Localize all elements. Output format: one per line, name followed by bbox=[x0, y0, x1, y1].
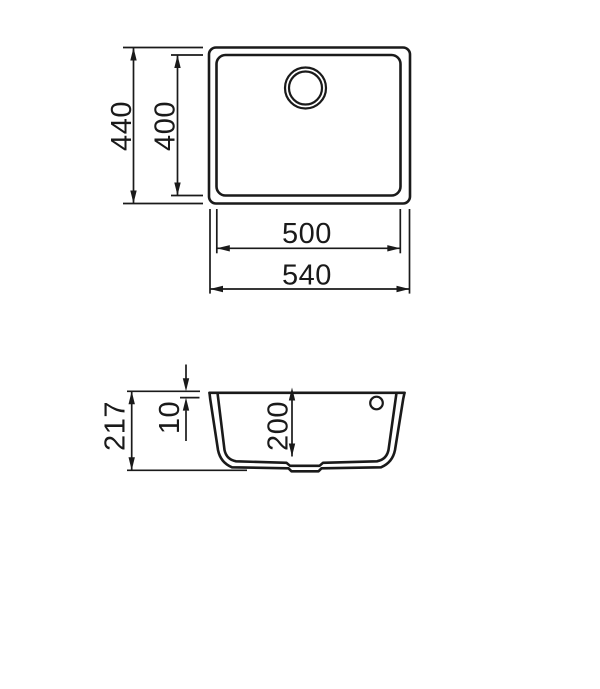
dim-label-outer-width: 540 bbox=[282, 260, 332, 292]
bowl-outer-profile bbox=[210, 393, 405, 472]
dim-label-inner-width: 500 bbox=[282, 218, 332, 250]
dim-inner-height: 400 bbox=[150, 55, 204, 196]
dim-inner-width: 500 bbox=[217, 209, 400, 253]
dim-label-outer-height: 440 bbox=[106, 101, 138, 151]
drain-outer-circle bbox=[285, 68, 326, 109]
technical-drawing-canvas: 440 400 500 bbox=[0, 0, 600, 689]
section-view: 217 10 200 bbox=[100, 365, 405, 472]
sink-inner-rect bbox=[217, 55, 401, 196]
dim-label-total-depth: 217 bbox=[100, 401, 132, 451]
drain-inner-circle bbox=[289, 72, 322, 105]
top-view: 440 400 500 bbox=[106, 48, 410, 294]
dim-label-inner-height: 400 bbox=[150, 101, 182, 151]
dim-rim-offset: 10 bbox=[154, 365, 200, 442]
sink-dimension-drawing: 440 400 500 bbox=[0, 0, 600, 689]
overflow-hole bbox=[370, 397, 383, 410]
dim-label-rim-offset: 10 bbox=[154, 401, 186, 434]
dim-bowl-depth: 200 bbox=[263, 388, 296, 457]
dim-label-bowl-depth: 200 bbox=[263, 401, 295, 451]
